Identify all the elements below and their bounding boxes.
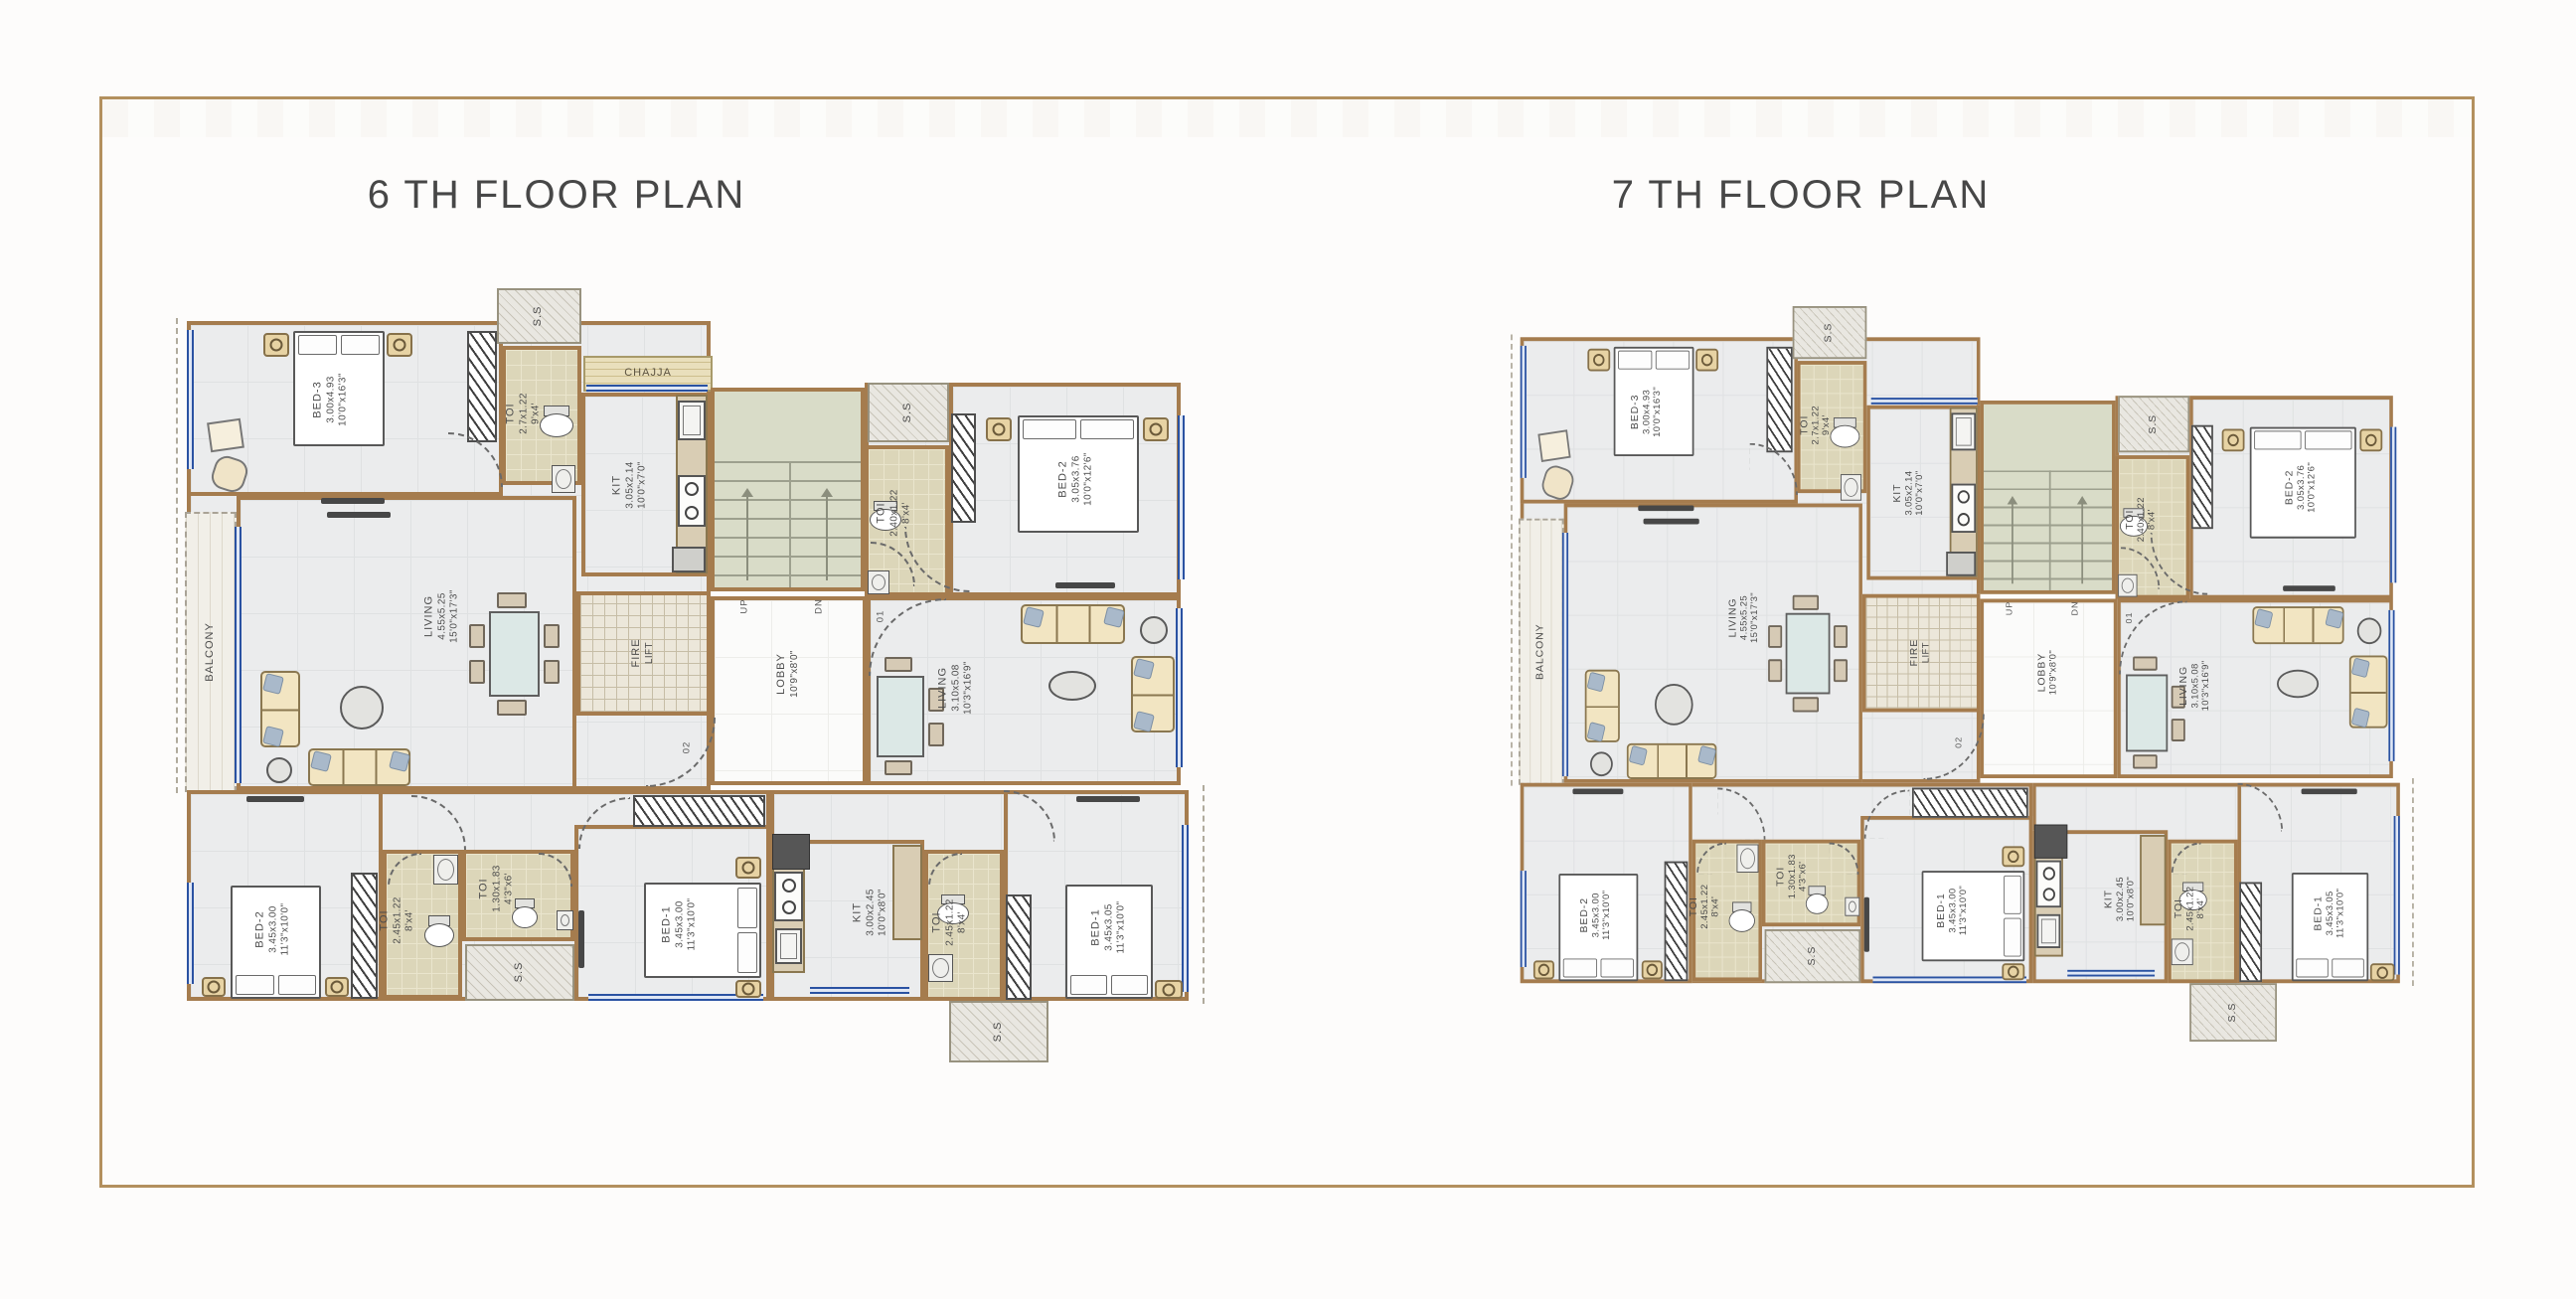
- wash-basin: [2172, 939, 2193, 966]
- dining-chair: [1768, 625, 1782, 648]
- property-dashed-line: [1511, 335, 1520, 786]
- window: [2067, 970, 2155, 977]
- nightstand: [2370, 963, 2395, 981]
- window: [1182, 825, 1189, 992]
- stairs-down-arrow: [826, 491, 828, 580]
- lamp-icon: [742, 862, 755, 875]
- round-table: [1140, 616, 1168, 644]
- dining-chair: [1768, 659, 1782, 682]
- room-label-line: 3.45x3.00: [267, 903, 280, 956]
- dining-chair: [497, 700, 527, 716]
- cushion: [2351, 657, 2370, 678]
- toilet-wc: [1729, 901, 1755, 931]
- pillow: [1618, 351, 1652, 370]
- room-label-line: 8'x4': [2148, 497, 2159, 542]
- room-label-line: 10'0"x8'0": [2127, 877, 2138, 921]
- wardrobe: [633, 795, 765, 827]
- room-label-line: S.S: [901, 403, 915, 423]
- wardrobe: [1006, 894, 1032, 1000]
- room-label-balcony: BALCONY: [204, 622, 218, 682]
- dining-chair: [1793, 697, 1819, 712]
- kitchen-platform: [892, 845, 922, 940]
- room-label-line: BED-1: [2314, 889, 2326, 938]
- pillow: [1656, 351, 1690, 370]
- coffee-table: [1048, 671, 1096, 701]
- annotation-stairs-down: DN: [2070, 601, 2080, 616]
- pillow: [298, 335, 337, 355]
- basin-bowl-icon: [1849, 901, 1856, 912]
- room-label-line: S.S: [992, 1022, 1006, 1043]
- room-label-line: 11'3"x10'0": [280, 903, 293, 956]
- cushion: [1629, 745, 1648, 766]
- cushion: [1587, 672, 1606, 693]
- dining-chair: [2172, 719, 2185, 741]
- room-label-line: LIVING: [937, 661, 951, 715]
- lamp-icon: [208, 981, 221, 994]
- room-label-line: 9'x4': [531, 393, 544, 434]
- toilet-wc: [1830, 417, 1859, 447]
- dining-table: [2126, 675, 2168, 752]
- lamp-icon: [2227, 434, 2238, 446]
- nightstand: [2002, 846, 2024, 867]
- room-label-line: BED-2: [1057, 452, 1071, 506]
- room-label-line: 8'x4': [901, 489, 914, 537]
- property-dashed-line: [176, 318, 186, 793]
- room-label-line: 10'9"x8'0": [2048, 650, 2059, 695]
- lamp-icon: [331, 981, 344, 994]
- annotation-door-02: 02: [1955, 736, 1965, 748]
- lamp-icon: [1593, 354, 1604, 366]
- cushion: [1133, 711, 1155, 732]
- wash-basin: [1845, 897, 1859, 916]
- refrigerator: [1946, 552, 1976, 576]
- nightstand: [2222, 429, 2245, 452]
- tv-console: [1644, 519, 1699, 525]
- sofa: [2252, 606, 2343, 644]
- dining-chair: [2133, 754, 2158, 768]
- burner-icon: [685, 482, 699, 496]
- dining-chair: [885, 760, 912, 775]
- room-label-line: 3.05x2.14: [1904, 470, 1915, 515]
- room-label-kit-2: KIT3.00x2.4510'0"x8'0": [852, 889, 890, 936]
- room-label-bed-2-top: BED-23.05x3.7610'0"x12'6": [1057, 452, 1096, 506]
- round-table: [1655, 684, 1693, 726]
- dining-table: [489, 611, 540, 697]
- toilet-wc: [540, 406, 573, 437]
- window: [810, 987, 909, 994]
- floor-7-plan: BED-33.00x4.9310'0"x16'3"TOI2.7x1.229'x4…: [1519, 306, 2403, 1061]
- window: [1562, 533, 1568, 776]
- room-label-line: LIFT: [644, 638, 657, 667]
- room-label-line: 2.7x1.22: [518, 393, 531, 434]
- room-label-line: 2.45x1.22: [944, 898, 957, 946]
- pillow: [236, 975, 274, 995]
- stairs-treads: [715, 461, 861, 587]
- wardrobe: [1766, 347, 1792, 452]
- sink-basin-icon: [683, 406, 701, 435]
- tv-console: [1572, 788, 1623, 794]
- stove: [2036, 861, 2061, 908]
- room-label-bed-2-bottom: BED-23.45x3.0011'3"x10'0": [1579, 891, 1613, 940]
- room-label-line: 10'3"x16'9": [963, 661, 976, 715]
- dining-table: [877, 676, 924, 757]
- room-label-line: BED-3: [312, 373, 326, 426]
- room-label-line: 8'x4': [2196, 887, 2207, 931]
- dining-chair: [1793, 595, 1819, 610]
- room-label-ss-1: S.S: [532, 306, 546, 327]
- room-label-line: 3.05x3.76: [2297, 462, 2308, 513]
- room-label-toi-5: TOI2.45x1.228'x4': [931, 898, 970, 946]
- annotation-stairs-up: UP: [739, 598, 750, 613]
- room-label-fire-lift: FIRELIFT: [630, 638, 656, 667]
- wardrobe: [951, 413, 976, 523]
- cushion: [1587, 722, 1606, 742]
- toilet-bowl: [424, 923, 454, 947]
- room-label-living-1: LIVING4.55x5.2515'0"x17'3": [423, 589, 462, 643]
- annotation-stairs-down: DN: [814, 598, 825, 614]
- room-label-ss-4: S.S: [992, 1022, 1006, 1043]
- room-label-line: 10'0"x7'0": [1915, 470, 1926, 515]
- cushion: [1133, 658, 1155, 680]
- stove: [678, 475, 706, 527]
- room-label-line: TOI: [505, 393, 519, 434]
- toilet-bowl: [540, 413, 573, 437]
- pillow: [2004, 876, 2021, 914]
- wardrobe: [1665, 862, 1689, 982]
- room-label-line: 3.05x2.14: [624, 461, 637, 509]
- room-label-line: 3.00x4.93: [325, 373, 338, 426]
- basin-bowl-icon: [1740, 848, 1755, 869]
- room-label-line: 10'0"x7'0": [637, 461, 650, 509]
- room-label-line: TOI: [2173, 887, 2185, 931]
- round-table: [2357, 618, 2382, 645]
- room-label-line: 2.40x1.22: [888, 489, 901, 537]
- room-label-lobby: LOBBY10'9"x8'0": [2036, 650, 2059, 695]
- coffee-table: [2277, 670, 2319, 699]
- room-label-balcony: BALCONY: [1535, 623, 1547, 680]
- floor-6-plan: BED-33.00x4.9310'0"x16'3"TOI2.7x1.229'x4…: [185, 288, 1193, 1083]
- room-label-toi-4: TOI1.30x1.834'3"x6': [478, 865, 517, 912]
- room-label-line: 4.55x5.25: [1739, 592, 1750, 643]
- stairs-divider: [2049, 470, 2051, 590]
- room-label-line: 3.10x5.08: [2190, 660, 2201, 711]
- cushion: [2351, 708, 2370, 729]
- room-label-line: 11'3"x10'0": [1602, 891, 1613, 940]
- lamp-icon: [270, 339, 283, 352]
- round-table: [1590, 751, 1613, 776]
- room-label-line: S.S: [513, 962, 527, 983]
- room-label-line: TOI: [478, 865, 492, 912]
- room-label-line: 3.10x5.08: [950, 661, 963, 715]
- wardrobe: [351, 873, 378, 999]
- tv-console: [2302, 788, 2357, 794]
- room-label-toi-3: TOI2.45x1.228'x4': [379, 896, 417, 944]
- round-table: [340, 686, 384, 730]
- kitchen-sink: [678, 401, 706, 440]
- property-dashed-line: [2405, 778, 2414, 986]
- room-label-line: TOI: [1776, 854, 1788, 898]
- room-label-line: KIT: [2104, 877, 2116, 921]
- room-label-fire-lift: FIRELIFT: [1909, 639, 1932, 667]
- room-label-bed-3: BED-33.00x4.9310'0"x16'3": [1630, 387, 1664, 437]
- room-label-line: 11'3"x10'0": [1116, 901, 1129, 954]
- room-label-line: BALCONY: [204, 622, 218, 682]
- room-label-line: 2.45x1.22: [1700, 885, 1711, 929]
- dining-chair: [544, 660, 560, 684]
- nightstand: [387, 333, 412, 357]
- wash-basin: [928, 954, 953, 982]
- toilet-bowl: [1830, 425, 1859, 447]
- room-label-line: 2.7x1.22: [1811, 406, 1822, 444]
- basin-bowl-icon: [932, 958, 949, 978]
- room-label-line: 15'0"x17'3": [449, 589, 462, 643]
- round-table: [266, 757, 292, 783]
- lamp-icon: [1150, 423, 1163, 436]
- stairs-up-arrow: [746, 491, 748, 580]
- window: [1521, 871, 1527, 967]
- room-label-line: BED-2: [2285, 462, 2297, 513]
- annotation-door-02: 02: [682, 741, 693, 754]
- room-label-bed-1-right: BED-13.45x3.0511'3"x10'0": [1090, 901, 1129, 954]
- room-label-bed-2-bottom: BED-23.45x3.0011'3"x10'0": [254, 903, 293, 956]
- tv-console: [321, 498, 385, 504]
- nightstand: [1533, 960, 1554, 979]
- cushion: [1103, 606, 1125, 628]
- lamp-icon: [1538, 964, 1549, 976]
- room-label-line: LIVING: [2178, 660, 2190, 711]
- room-label-line: 15'0"x17'3": [1750, 592, 1761, 643]
- annotation-door-01: 01: [876, 610, 886, 623]
- room-label-line: 3.45x3.00: [1948, 886, 1959, 935]
- tv-console: [2283, 585, 2335, 591]
- room-label-line: 2.45x1.22: [2185, 887, 2196, 931]
- kitchen-sink: [775, 928, 802, 964]
- room-label-bed-2-top: BED-23.05x3.7610'0"x12'6": [2285, 462, 2319, 513]
- kitchen-cabinet: [772, 834, 810, 870]
- room-label-line: 3.00x4.93: [1642, 387, 1653, 437]
- room-label-ss-3: S.S: [1807, 946, 1819, 966]
- dining-chair: [469, 660, 485, 684]
- room-label-line: 3.45x3.00: [1591, 891, 1602, 940]
- refrigerator: [672, 547, 706, 572]
- kitchen-sink: [2037, 914, 2061, 948]
- property-dashed-line: [1195, 785, 1205, 1004]
- cushion: [262, 673, 284, 695]
- annotation-stairs-up: UP: [2005, 601, 2014, 615]
- nightstand: [2002, 963, 2024, 980]
- room-label-line: 3.45x3.05: [1103, 901, 1116, 954]
- cushion: [262, 726, 284, 747]
- room-label-ss-3: S.S: [513, 962, 527, 983]
- cushion: [310, 750, 332, 772]
- room-label-line: LOBBY: [2036, 650, 2048, 695]
- burner-icon: [1958, 490, 1970, 503]
- room-label-line: 4.55x5.25: [436, 589, 449, 643]
- stairs-treads: [1984, 470, 2112, 590]
- nightstand: [202, 977, 226, 997]
- dining-chair: [469, 624, 485, 648]
- window: [2390, 427, 2396, 583]
- nightstand: [1155, 980, 1183, 999]
- toilet-bowl: [1729, 909, 1755, 931]
- room-label-line: 4'3"x6': [504, 865, 517, 912]
- floor-6-title: 6 TH FLOOR PLAN: [368, 173, 745, 218]
- cushion: [1697, 745, 1716, 766]
- sofa: [260, 671, 300, 747]
- room-label-line: 11'3"x10'0": [687, 898, 700, 951]
- room-label-line: 2.45x1.22: [392, 896, 404, 944]
- window: [235, 527, 241, 783]
- lamp-icon: [1647, 964, 1658, 976]
- room-stairs: [711, 388, 865, 591]
- wardrobe: [2191, 425, 2213, 530]
- room-label-line: BED-1: [661, 898, 675, 951]
- room-label-toi-1: TOI2.7x1.229'x4': [505, 393, 544, 434]
- room-label-living-2: LIVING3.10x5.0810'3"x16'9": [937, 661, 976, 715]
- lamp-icon: [2008, 966, 2018, 978]
- room-label-line: 10'0"x16'3": [1653, 387, 1664, 437]
- room-label-toi-2: TOI2.40x1.228'x4': [876, 489, 914, 537]
- window: [2394, 816, 2400, 975]
- room-label-lobby: LOBBY10'9"x8'0": [775, 650, 801, 698]
- pillow: [737, 932, 757, 973]
- sink-basin-icon: [780, 933, 797, 959]
- room-label-line: S.S: [2227, 1003, 2239, 1023]
- room-label-line: TOI: [379, 896, 393, 944]
- background-texture-strip: [102, 99, 2472, 137]
- stove: [774, 872, 803, 921]
- pillow: [278, 975, 317, 995]
- room-label-ss-1: S.S: [1824, 323, 1836, 343]
- room-label-line: BALCONY: [1535, 623, 1547, 680]
- room-label-line: S.S: [1807, 946, 1819, 966]
- room-label-line: 3.00x2.45: [2116, 877, 2127, 921]
- sofa: [1021, 604, 1125, 644]
- room-stairs: [1980, 401, 2115, 594]
- room-label-toi-5: TOI2.45x1.228'x4': [2173, 887, 2207, 931]
- window: [2388, 610, 2394, 761]
- room-label-line: 8'x4': [1711, 885, 1722, 929]
- lamp-icon: [2008, 851, 2018, 863]
- window: [187, 883, 194, 984]
- room-label-line: 4'3"x6': [1799, 854, 1810, 898]
- pillow: [1563, 958, 1597, 977]
- room-label-line: 10'3"x16'9": [2201, 660, 2212, 711]
- burner-icon: [685, 506, 699, 520]
- tv-console: [246, 796, 304, 802]
- room-label-line: BED-3: [1630, 387, 1642, 437]
- sofa: [1627, 743, 1716, 779]
- sink-basin-icon: [1956, 417, 1972, 445]
- study-desk: [1537, 429, 1570, 462]
- pillow: [2305, 430, 2351, 449]
- room-label-line: KIT: [852, 889, 866, 936]
- sofa: [1585, 670, 1620, 742]
- room-label-line: 9'x4': [1822, 406, 1833, 444]
- tv-console: [1864, 897, 1869, 952]
- stairs-up-arrow: [2012, 499, 2013, 584]
- pillow: [1111, 975, 1148, 995]
- nightstand: [1642, 960, 1663, 979]
- room-label-chajja: CHAJJA: [624, 367, 672, 381]
- dining-chair: [1834, 659, 1848, 682]
- pillow: [2296, 958, 2328, 977]
- room-label-kit-2: KIT3.00x2.4510'0"x8'0": [2104, 877, 2138, 921]
- room-label-line: S.S: [2148, 414, 2160, 434]
- room-label-line: TOI: [2125, 497, 2137, 542]
- dining-table: [1786, 613, 1831, 695]
- room-label-line: BED-1: [1936, 886, 1948, 935]
- basin-bowl-icon: [561, 914, 569, 926]
- room-label-kit-1: KIT3.05x2.1410'0"x7'0": [611, 461, 650, 509]
- room-label-bed-3: BED-33.00x4.9310'0"x16'3": [312, 373, 351, 426]
- lamp-icon: [1701, 354, 1712, 366]
- room-label-line: 10'0"x12'6": [2308, 462, 2319, 513]
- floor-7-title: 7 TH FLOOR PLAN: [1612, 173, 1990, 218]
- tv-console: [1055, 582, 1115, 588]
- wardrobe: [1912, 788, 2028, 818]
- pillow: [1070, 975, 1107, 995]
- sink-basin-icon: [2041, 919, 2056, 944]
- window: [1178, 415, 1185, 579]
- room-label-toi-2: TOI2.40x1.228'x4': [2125, 497, 2159, 542]
- nightstand: [986, 417, 1012, 441]
- lamp-icon: [1163, 983, 1176, 996]
- room-label-line: 1.30x1.83: [1788, 854, 1799, 898]
- room-label-line: TOI: [931, 898, 945, 946]
- room-label-line: FIRE: [1909, 639, 1921, 667]
- pillow: [1080, 419, 1134, 439]
- room-label-line: KIT: [611, 461, 625, 509]
- kitchen-sink: [1951, 412, 1976, 450]
- cushion: [2325, 608, 2343, 629]
- wash-basin: [433, 855, 458, 885]
- lamp-icon: [394, 339, 406, 352]
- sofa: [1131, 656, 1175, 732]
- room-label-toi-3: TOI2.45x1.228'x4': [1689, 885, 1722, 929]
- tv-console: [327, 512, 391, 518]
- room-label-line: TOI: [1689, 885, 1700, 929]
- wash-basin: [1841, 474, 1861, 501]
- burner-icon: [2042, 888, 2054, 900]
- room-label-line: 1.30x1.83: [491, 865, 504, 912]
- room-label-line: LIVING: [1727, 592, 1739, 643]
- tv-console: [1638, 505, 1693, 511]
- room-label-toi-4: TOI1.30x1.834'3"x6': [1776, 854, 1810, 898]
- kitchen-cabinet: [2034, 825, 2067, 859]
- nightstand: [263, 333, 289, 357]
- dining-chair: [544, 624, 560, 648]
- pillow: [1600, 958, 1634, 977]
- room-label-line: 3.05x3.76: [1070, 452, 1083, 506]
- window: [1176, 608, 1183, 767]
- wash-basin: [557, 910, 573, 930]
- nightstand: [735, 857, 761, 879]
- window: [1521, 346, 1527, 478]
- room-label-line: LIVING: [423, 589, 437, 643]
- cushion: [1023, 606, 1045, 628]
- lamp-icon: [742, 983, 755, 996]
- room-label-ss-2: S.S: [901, 403, 915, 423]
- dining-chair: [497, 592, 527, 608]
- nightstand: [1143, 417, 1169, 441]
- basin-bowl-icon: [2174, 942, 2189, 961]
- room-label-line: TOI: [876, 489, 889, 537]
- room-label-line: LIFT: [1921, 639, 1932, 667]
- stairs-divider: [789, 461, 791, 587]
- room-label-line: S.S: [532, 306, 546, 327]
- room-label-bed-1-left: BED-13.45x3.0011'3"x10'0": [1936, 886, 1970, 935]
